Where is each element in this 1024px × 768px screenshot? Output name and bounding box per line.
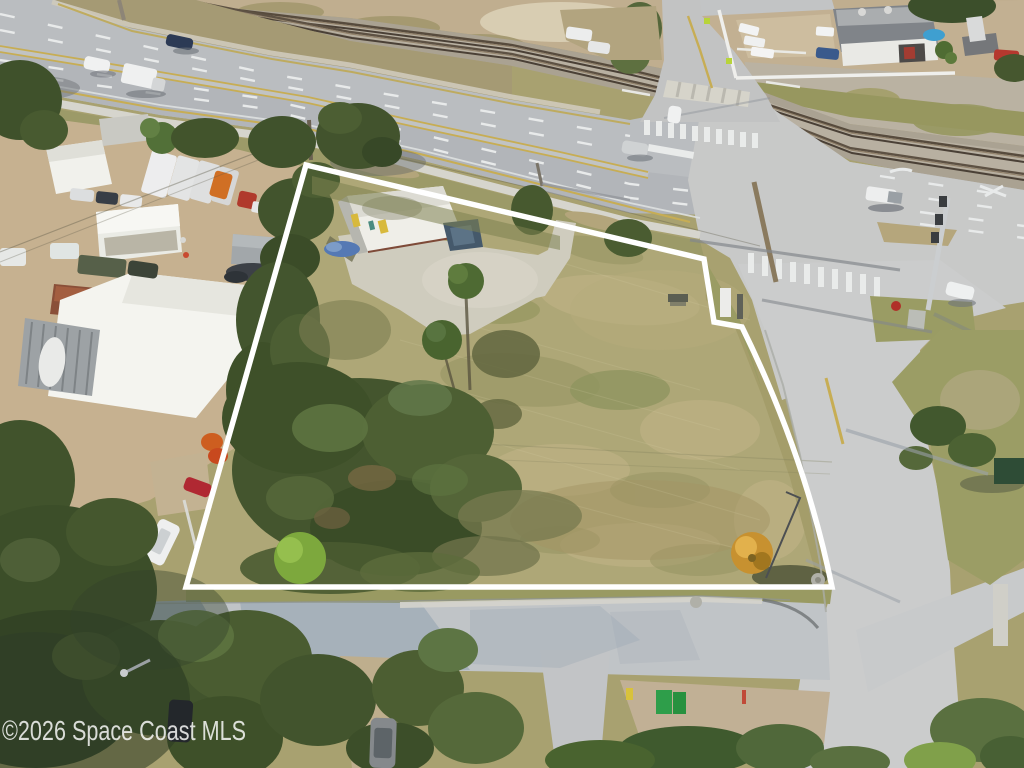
svg-text:©2026 Space Coast MLS: ©2026 Space Coast MLS — [2, 715, 246, 746]
